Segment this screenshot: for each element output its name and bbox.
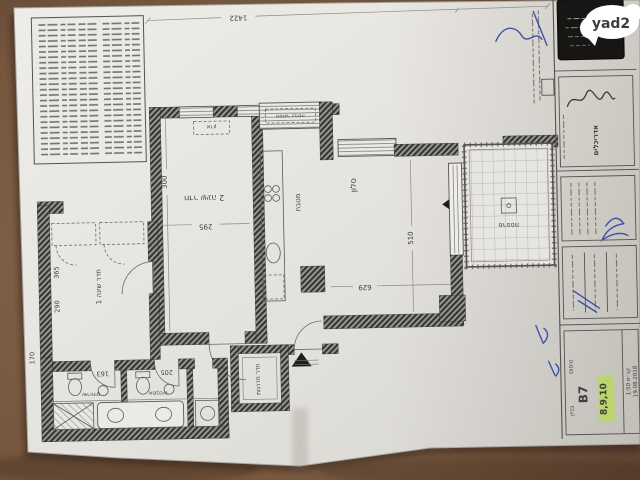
room-balcony: מרפסת bbox=[464, 143, 555, 267]
dim-629: 629 bbox=[358, 283, 372, 291]
room-label-closet: ארון bbox=[206, 123, 216, 129]
room-label-kitchen: מטבח bbox=[294, 193, 302, 211]
column bbox=[301, 266, 326, 292]
yad2-logo-text: yad2 bbox=[592, 16, 630, 32]
sliding-door bbox=[448, 163, 463, 255]
date-value: 19.08.2018 bbox=[633, 365, 640, 397]
dim-295: 295 bbox=[199, 222, 213, 230]
bathtub bbox=[97, 401, 184, 429]
dim-290: 290 bbox=[53, 300, 61, 313]
dim-510: 510 bbox=[407, 231, 415, 245]
dim-170: 170 bbox=[28, 352, 36, 365]
dim-300: 300 bbox=[161, 175, 169, 189]
units-value: 8,9,10 bbox=[599, 383, 610, 415]
room-label-bath: אמבטיה bbox=[148, 389, 167, 395]
room-label-living: סלון bbox=[349, 178, 358, 192]
column bbox=[439, 295, 466, 322]
notes-block bbox=[31, 16, 146, 164]
firm-name: אדריכלים bbox=[592, 125, 601, 156]
room-label-bedroom2: חדר שינה 2 bbox=[184, 193, 224, 203]
dim-205: 205 bbox=[160, 368, 173, 376]
building-value: B7 bbox=[576, 386, 590, 404]
scale-value: קנ״מ 1:50 bbox=[626, 368, 633, 396]
type-label: טיפוס bbox=[568, 359, 575, 374]
window bbox=[338, 138, 396, 156]
paper-fold-crease bbox=[292, 408, 308, 470]
window bbox=[179, 106, 213, 118]
room-label-wc: שירותים bbox=[82, 391, 100, 397]
photo-canvas: 1422 ארון חדר שינה 2 295 300 bbox=[0, 0, 640, 480]
dim-1422: 1422 bbox=[229, 13, 247, 21]
dim-163: 163 bbox=[96, 369, 109, 377]
floorplan-photo: 1422 ארון חדר שינה 2 295 300 bbox=[0, 0, 640, 480]
building-label: בניין bbox=[569, 405, 576, 416]
dim-365: 365 bbox=[52, 266, 60, 279]
room-label-laundry: מסתור כביסה bbox=[276, 112, 305, 119]
room-label-bedroom1: חדר שינה 1 bbox=[95, 269, 104, 304]
room-label-balcony: מרפסת bbox=[498, 221, 519, 229]
room-label-stairs: חדר מדרגות bbox=[255, 364, 263, 395]
